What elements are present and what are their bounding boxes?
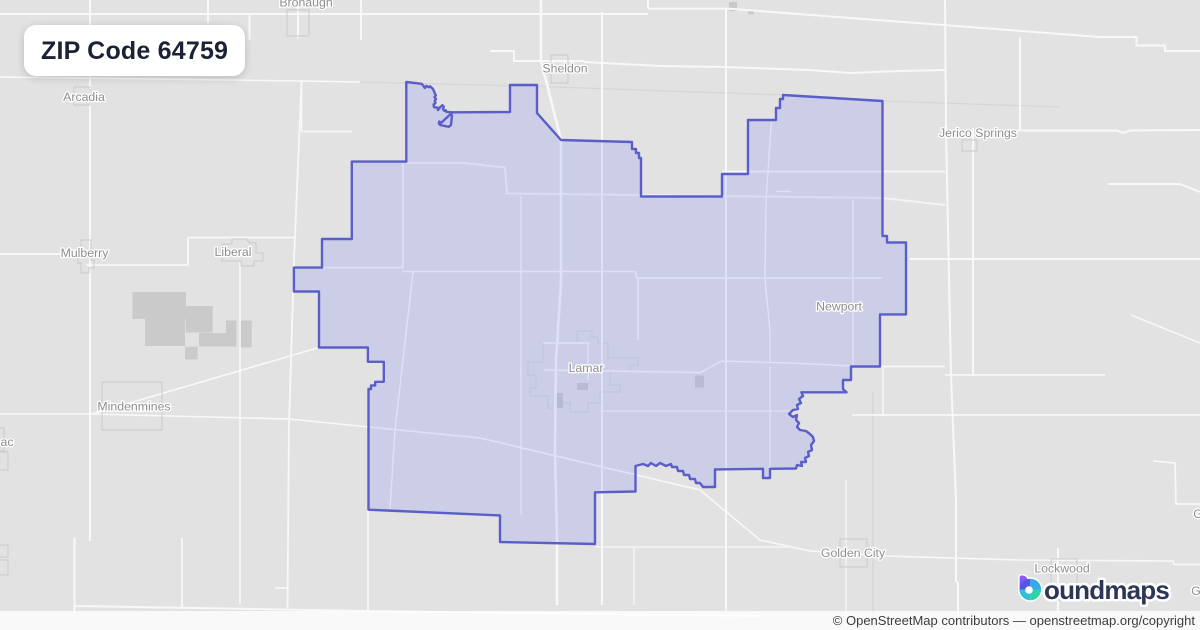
- svg-text:Mindenmines: Mindenmines: [97, 400, 170, 414]
- svg-text:oundmaps: oundmaps: [1044, 575, 1169, 605]
- svg-text:ac: ac: [1, 435, 14, 449]
- svg-text:Mulberry: Mulberry: [61, 246, 110, 260]
- svg-text:Golden City: Golden City: [821, 546, 886, 560]
- svg-text:Lockwood: Lockwood: [1034, 562, 1090, 576]
- svg-text:Newport: Newport: [816, 300, 862, 314]
- svg-text:Liberal: Liberal: [215, 245, 252, 259]
- svg-text:Jerico Springs: Jerico Springs: [939, 126, 1017, 140]
- svg-text:G: G: [1193, 507, 1200, 521]
- svg-text:G: G: [1191, 584, 1200, 598]
- svg-text:Sheldon: Sheldon: [542, 62, 587, 76]
- svg-text:Bronaugh: Bronaugh: [279, 0, 332, 10]
- svg-text:Arcadia: Arcadia: [63, 90, 105, 104]
- svg-text:Lamar: Lamar: [569, 361, 604, 375]
